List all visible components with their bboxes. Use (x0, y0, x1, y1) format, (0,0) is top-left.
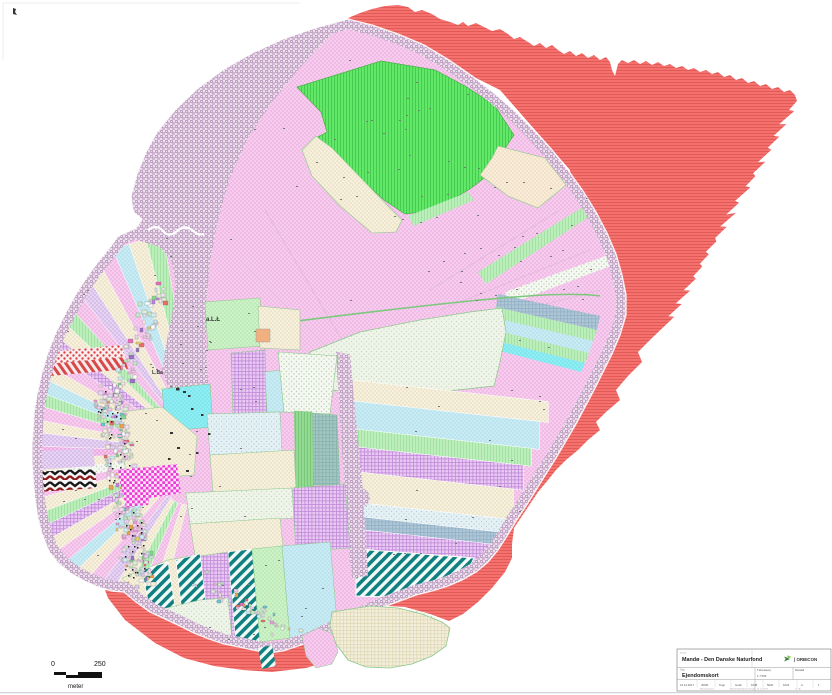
svg-text:Ejendomskort: Ejendomskort (682, 673, 719, 679)
svg-text:1648: 1648 (751, 683, 758, 687)
svg-text:Sag: Sag (680, 668, 685, 672)
svg-text:250: 250 (94, 661, 106, 668)
svg-text:1024: 1024 (783, 683, 790, 687)
svg-text:rev. A: rev. A (795, 688, 801, 691)
svg-text:L.Ba: L.Ba (152, 370, 163, 376)
svg-text:Mandø - Den Danske Naturfond: Mandø - Den Danske Naturfond (682, 657, 762, 663)
svg-text:JKMF: JKMF (701, 683, 709, 687)
svg-text:0: 0 (51, 661, 55, 668)
svg-text:21.12.2017: 21.12.2017 (680, 683, 694, 687)
svg-text:| ORBICON: | ORBICON (794, 657, 817, 662)
svg-text:A: A (801, 683, 803, 687)
svg-text:Godk: Godk (735, 683, 742, 687)
svg-text:Mandø Ejendomsoversigt: Mandø Ejendomsoversigt (730, 688, 755, 691)
svg-text:Kunde: Kunde (680, 653, 687, 655)
svg-text:Tegn: Tegn (719, 683, 726, 687)
svg-text:5020: 5020 (767, 683, 774, 687)
svg-text:Tørresøvej: Tørresøvej (757, 668, 771, 672)
svg-text:21.12.2017: 21.12.2017 (757, 689, 769, 691)
svg-text:Naturstyrelsen: Naturstyrelsen (700, 688, 715, 691)
svg-text:1:7.500: 1:7.500 (757, 674, 767, 678)
svg-text:Mandal: Mandal (795, 668, 805, 672)
svg-text:a.L.Ł: a.L.Ł (206, 317, 220, 323)
svg-text:meter: meter (68, 684, 83, 690)
